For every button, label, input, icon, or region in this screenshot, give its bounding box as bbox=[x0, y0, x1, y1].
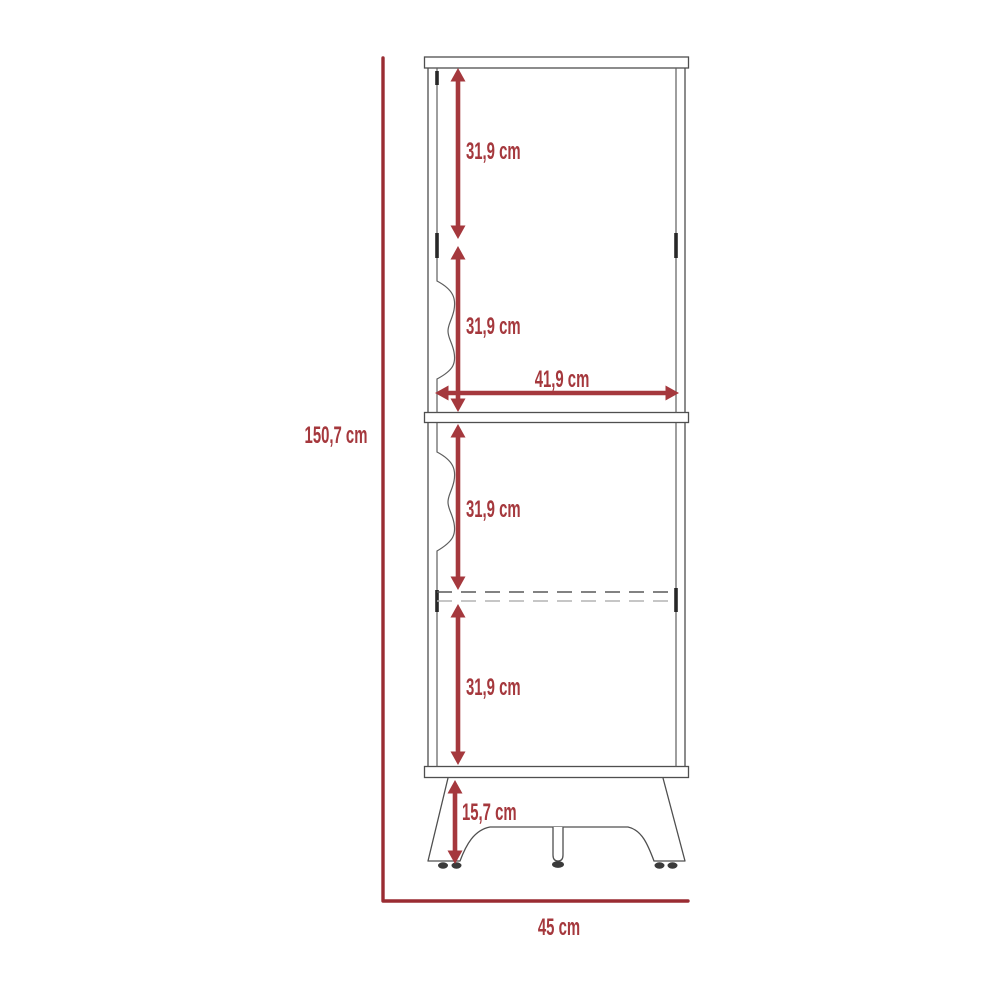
foot-glide bbox=[668, 862, 678, 868]
center-leg bbox=[553, 827, 563, 861]
dim-arrow-upper-section-a bbox=[451, 68, 466, 239]
foot-glide bbox=[452, 862, 462, 868]
dim-label-total-height: 150,7 cm bbox=[285, 424, 386, 448]
dim-label-upper-section-a: 31,9 cm bbox=[466, 140, 554, 164]
foot-glide bbox=[552, 861, 564, 868]
dim-arrow-lower-section-b bbox=[451, 604, 466, 765]
dim-arrow-leg-height bbox=[448, 780, 463, 864]
diagram-canvas: 150,7 cm 31,9 cm 31,9 cm 41,9 cm 31,9 cm… bbox=[0, 0, 1000, 1000]
dim-label-leg-height: 15,7 cm bbox=[462, 801, 550, 825]
dim-label-total-width: 45 cm bbox=[525, 916, 593, 940]
dim-label-inner-width: 41,9 cm bbox=[518, 368, 606, 392]
lower-door-left-edge-handle-groove bbox=[437, 423, 455, 767]
bottom-panel bbox=[425, 767, 689, 778]
upper-door-left-edge-handle-groove bbox=[437, 68, 455, 413]
middle-panel bbox=[425, 413, 689, 423]
dim-arrow-lower-section-a bbox=[451, 424, 466, 590]
top-panel bbox=[425, 57, 689, 68]
dim-label-upper-section-b: 31,9 cm bbox=[466, 315, 554, 339]
dim-arrow-upper-section-b bbox=[451, 246, 466, 412]
dim-label-lower-section-a: 31,9 cm bbox=[466, 498, 554, 522]
foot-glide bbox=[655, 862, 665, 868]
dim-label-lower-section-b: 31,9 cm bbox=[466, 676, 554, 700]
foot-glide bbox=[438, 862, 448, 868]
